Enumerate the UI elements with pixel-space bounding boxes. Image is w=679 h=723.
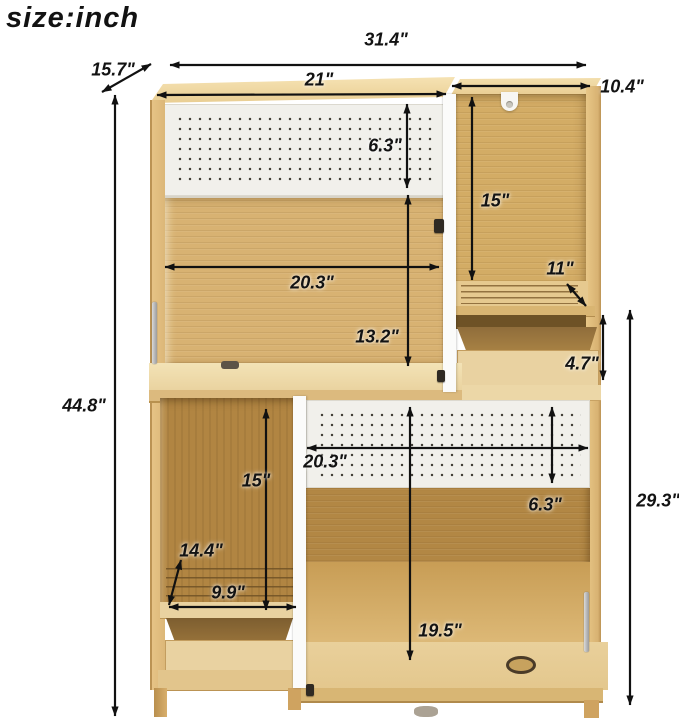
- dim-overall-height: 44.8": [62, 396, 106, 417]
- dim-lower-pegboard-height: 6.3": [528, 495, 562, 516]
- dim-lower-shelf-diagonal: 14.4": [179, 541, 223, 562]
- dim-right-top-width: 10.4": [600, 77, 644, 98]
- dim-overall-width: 31.4": [364, 30, 408, 51]
- arrow-lower-shelf-diagonal: [169, 560, 181, 605]
- dim-top-pegboard-height: 6.3": [368, 136, 402, 157]
- dim-lower-right-height: 29.3": [636, 491, 679, 512]
- dim-right-drawer-height: 4.7": [565, 354, 599, 375]
- product-dimension-diagram: size:inch 31.4" 15.7" 21" 10.4" 6.3" 15"…: [0, 0, 679, 723]
- dim-right-compartment-height: 15": [481, 191, 510, 212]
- dim-depth: 15.7": [91, 60, 135, 81]
- dim-upper-opening-width: 20.3": [290, 273, 334, 294]
- dim-upper-opening-height: 13.2": [355, 327, 399, 348]
- dim-lower-shelf-width: 9.9": [211, 583, 245, 604]
- dim-lower-left-height: 15": [242, 471, 271, 492]
- dim-hutch-top-width: 21": [305, 70, 334, 91]
- arrow-hutch-top-width: [157, 94, 446, 95]
- arrow-right-shelf-depth: [567, 284, 586, 306]
- dim-right-shelf-depth: 11": [546, 259, 573, 280]
- dim-lower-opening-width: 20.3": [303, 452, 347, 473]
- dim-lower-compartment-height: 19.5": [418, 621, 462, 642]
